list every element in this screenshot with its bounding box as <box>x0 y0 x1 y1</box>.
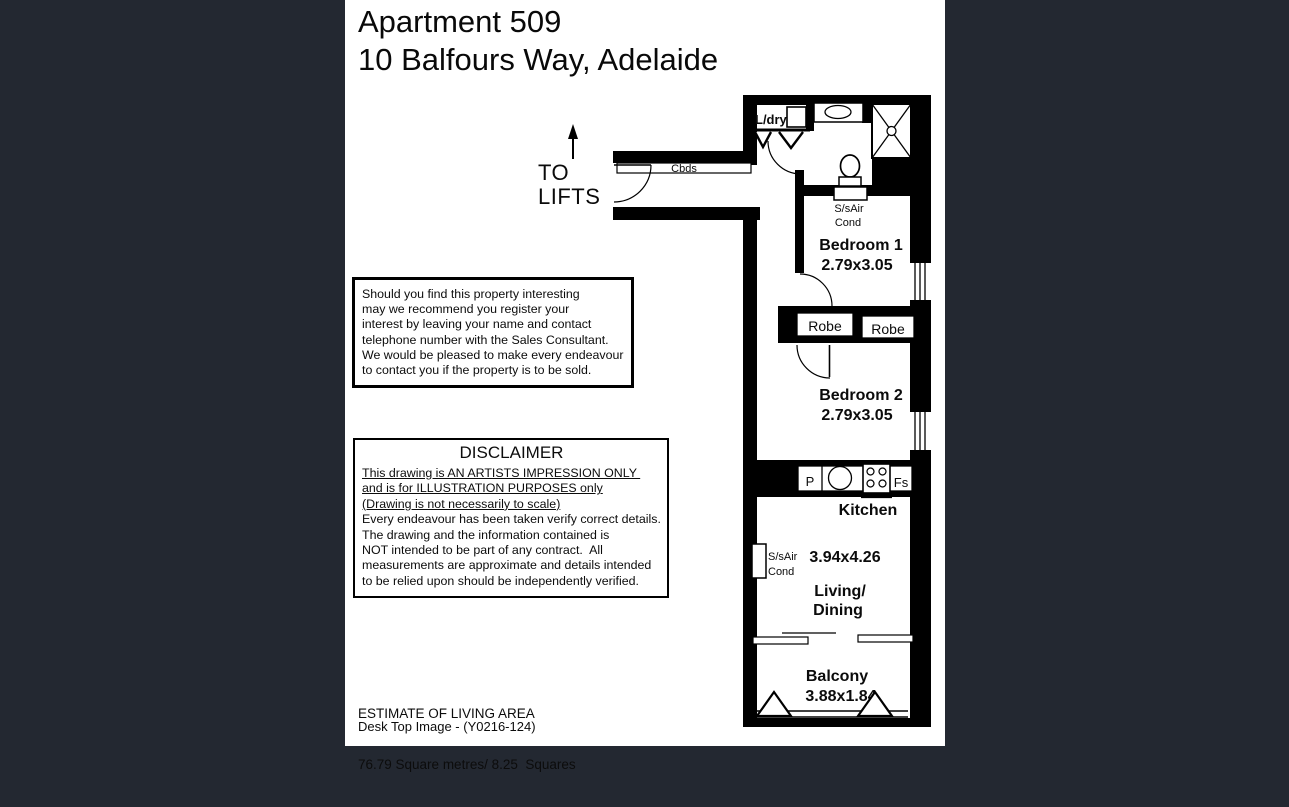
brochure-page: Apartment 509 10 Balfours Way, Adelaide … <box>345 0 945 746</box>
aircon-label-line2: Cond <box>835 217 861 229</box>
balcony: Balcony 3.88x1.84 <box>745 633 913 717</box>
wall-corridor-top <box>613 151 757 163</box>
to-lifts-line1: TO <box>538 160 569 185</box>
balcony-dims: 3.88x1.84 <box>805 688 876 705</box>
bedroom1-door-swing-icon <box>800 274 832 306</box>
bedroom1-window-icon <box>915 263 925 300</box>
living-dining: S/sAir Cond 3.94x4.26 Living/ Dining <box>752 544 881 619</box>
bedroom-1: S/sAir Cond Bedroom 1 2.79x3.05 <box>800 187 925 306</box>
sink-icon <box>829 467 852 490</box>
sliding-door-panel <box>858 635 913 642</box>
cupboards-label: Cbds <box>671 163 697 175</box>
bedroom1-dims: 2.79x3.05 <box>821 257 892 274</box>
estimate-value: 76.79 Square metres/ 8.25 Squares <box>358 756 576 773</box>
bathroom-door-swing-icon <box>768 141 801 174</box>
aircon-unit-icon <box>834 187 867 200</box>
living-dims: 3.94x4.26 <box>809 549 880 566</box>
balcony-name: Balcony <box>806 668 868 685</box>
to-lifts-annotation: TO LIFTS <box>538 124 600 209</box>
living-name-line1: Living/ <box>814 583 866 600</box>
robe-left-label: Robe <box>808 318 842 334</box>
entry-corridor: Cbds <box>614 163 751 202</box>
pantry-label: P <box>806 474 815 489</box>
cooktop-icon <box>863 464 890 493</box>
lift-arrow-head-icon <box>568 124 578 139</box>
image-reference: Desk Top Image - (Y0216-124) <box>358 719 536 734</box>
bedroom1-name: Bedroom 1 <box>819 237 903 254</box>
bedroom2-window-icon <box>915 412 925 450</box>
wall-hall-lower <box>795 196 804 273</box>
fridge-space-label: Fs <box>894 475 909 490</box>
kitchen-name: Kitchen <box>839 502 898 519</box>
balcony-corner-marker-icon <box>757 692 791 716</box>
wall-shower-block <box>872 158 911 188</box>
wall-left <box>743 207 757 727</box>
wall-right-upper <box>910 95 931 263</box>
wall-balcony-bottom <box>743 718 911 727</box>
bifold-door-icon <box>779 132 803 148</box>
toilet-icon <box>841 155 860 177</box>
sliding-door-panel <box>753 637 808 644</box>
aircon-label-line2: Cond <box>768 566 794 578</box>
robe-right-label: Robe <box>871 321 905 337</box>
aircon-unit-icon <box>752 544 766 578</box>
bedroom2-door-swing-icon <box>797 345 830 378</box>
floorplan-drawing: TO LIFTS Cbds <box>520 90 945 738</box>
bedroom2-name: Bedroom 2 <box>819 387 903 404</box>
title-line1: Apartment 509 <box>358 3 718 41</box>
shower-drain-icon <box>887 127 896 136</box>
laundry: L/dry <box>755 107 810 148</box>
washing-machine-icon <box>787 107 806 127</box>
toilet-cistern-icon <box>839 177 861 186</box>
aircon-label-line1: S/sAir <box>834 203 864 215</box>
bedroom-2: Bedroom 2 2.79x3.05 <box>797 345 925 450</box>
page-title: Apartment 509 10 Balfours Way, Adelaide <box>358 3 718 79</box>
kitchen: P Fs Kitchen <box>798 464 912 519</box>
wall-stub-laundry <box>806 103 814 131</box>
laundry-label: L/dry <box>755 112 788 127</box>
basin-icon <box>825 106 851 119</box>
wall-hall-upper <box>795 170 804 187</box>
living-name-line2: Dining <box>813 602 863 619</box>
to-lifts-line2: LIFTS <box>538 184 600 209</box>
bedroom2-dims: 2.79x3.05 <box>821 407 892 424</box>
wall-corridor-bottom <box>613 207 760 220</box>
aircon-label-line1: S/sAir <box>768 551 798 563</box>
title-line2: 10 Balfours Way, Adelaide <box>358 41 718 79</box>
wall-right-lower <box>910 450 931 727</box>
